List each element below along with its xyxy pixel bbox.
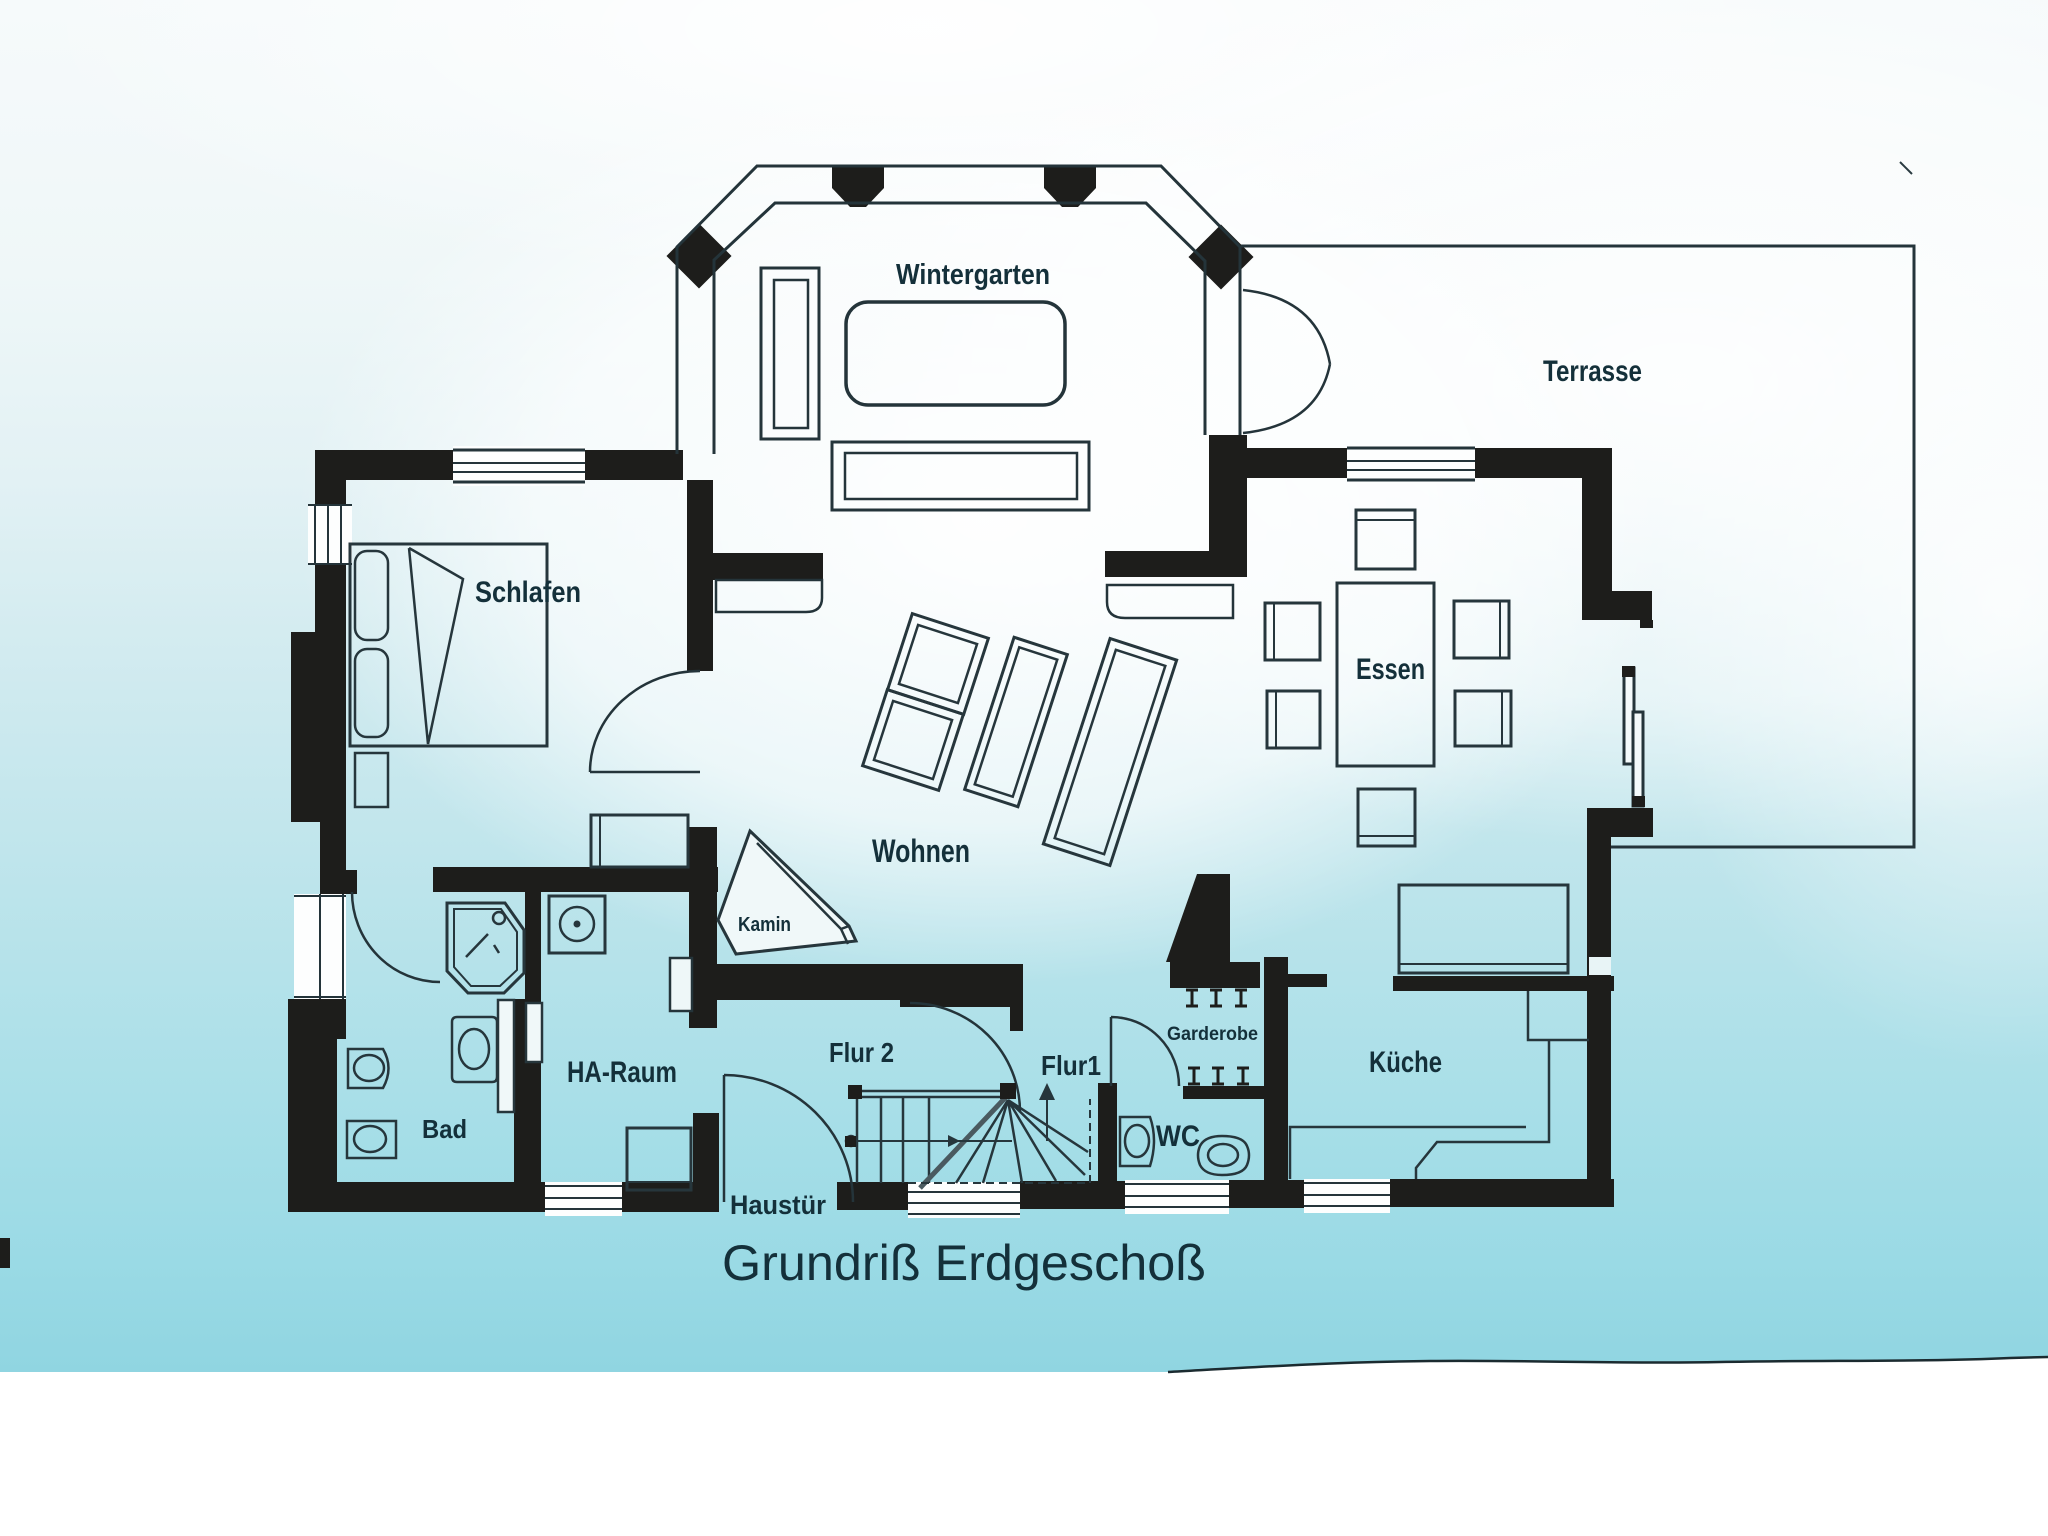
svg-text:Grundriß Erdgeschoß: Grundriß Erdgeschoß (722, 1235, 1206, 1291)
svg-text:Kamin: Kamin (738, 914, 791, 936)
svg-text:Küche: Küche (1369, 1046, 1442, 1079)
svg-text:WC: WC (1156, 1120, 1200, 1153)
svg-text:Terrasse: Terrasse (1543, 355, 1642, 388)
svg-text:Essen: Essen (1356, 653, 1425, 686)
svg-text:Schlafen: Schlafen (475, 576, 581, 609)
svg-text:Wintergarten: Wintergarten (896, 259, 1050, 291)
svg-text:Flur1: Flur1 (1041, 1050, 1101, 1081)
svg-text:Garderobe: Garderobe (1167, 1024, 1258, 1045)
svg-text:Flur 2: Flur 2 (829, 1037, 894, 1068)
svg-text:Wohnen: Wohnen (872, 833, 970, 869)
svg-text:Haustür: Haustür (730, 1190, 826, 1220)
svg-text:Bad: Bad (422, 1114, 467, 1144)
svg-text:HA-Raum: HA-Raum (567, 1056, 677, 1089)
